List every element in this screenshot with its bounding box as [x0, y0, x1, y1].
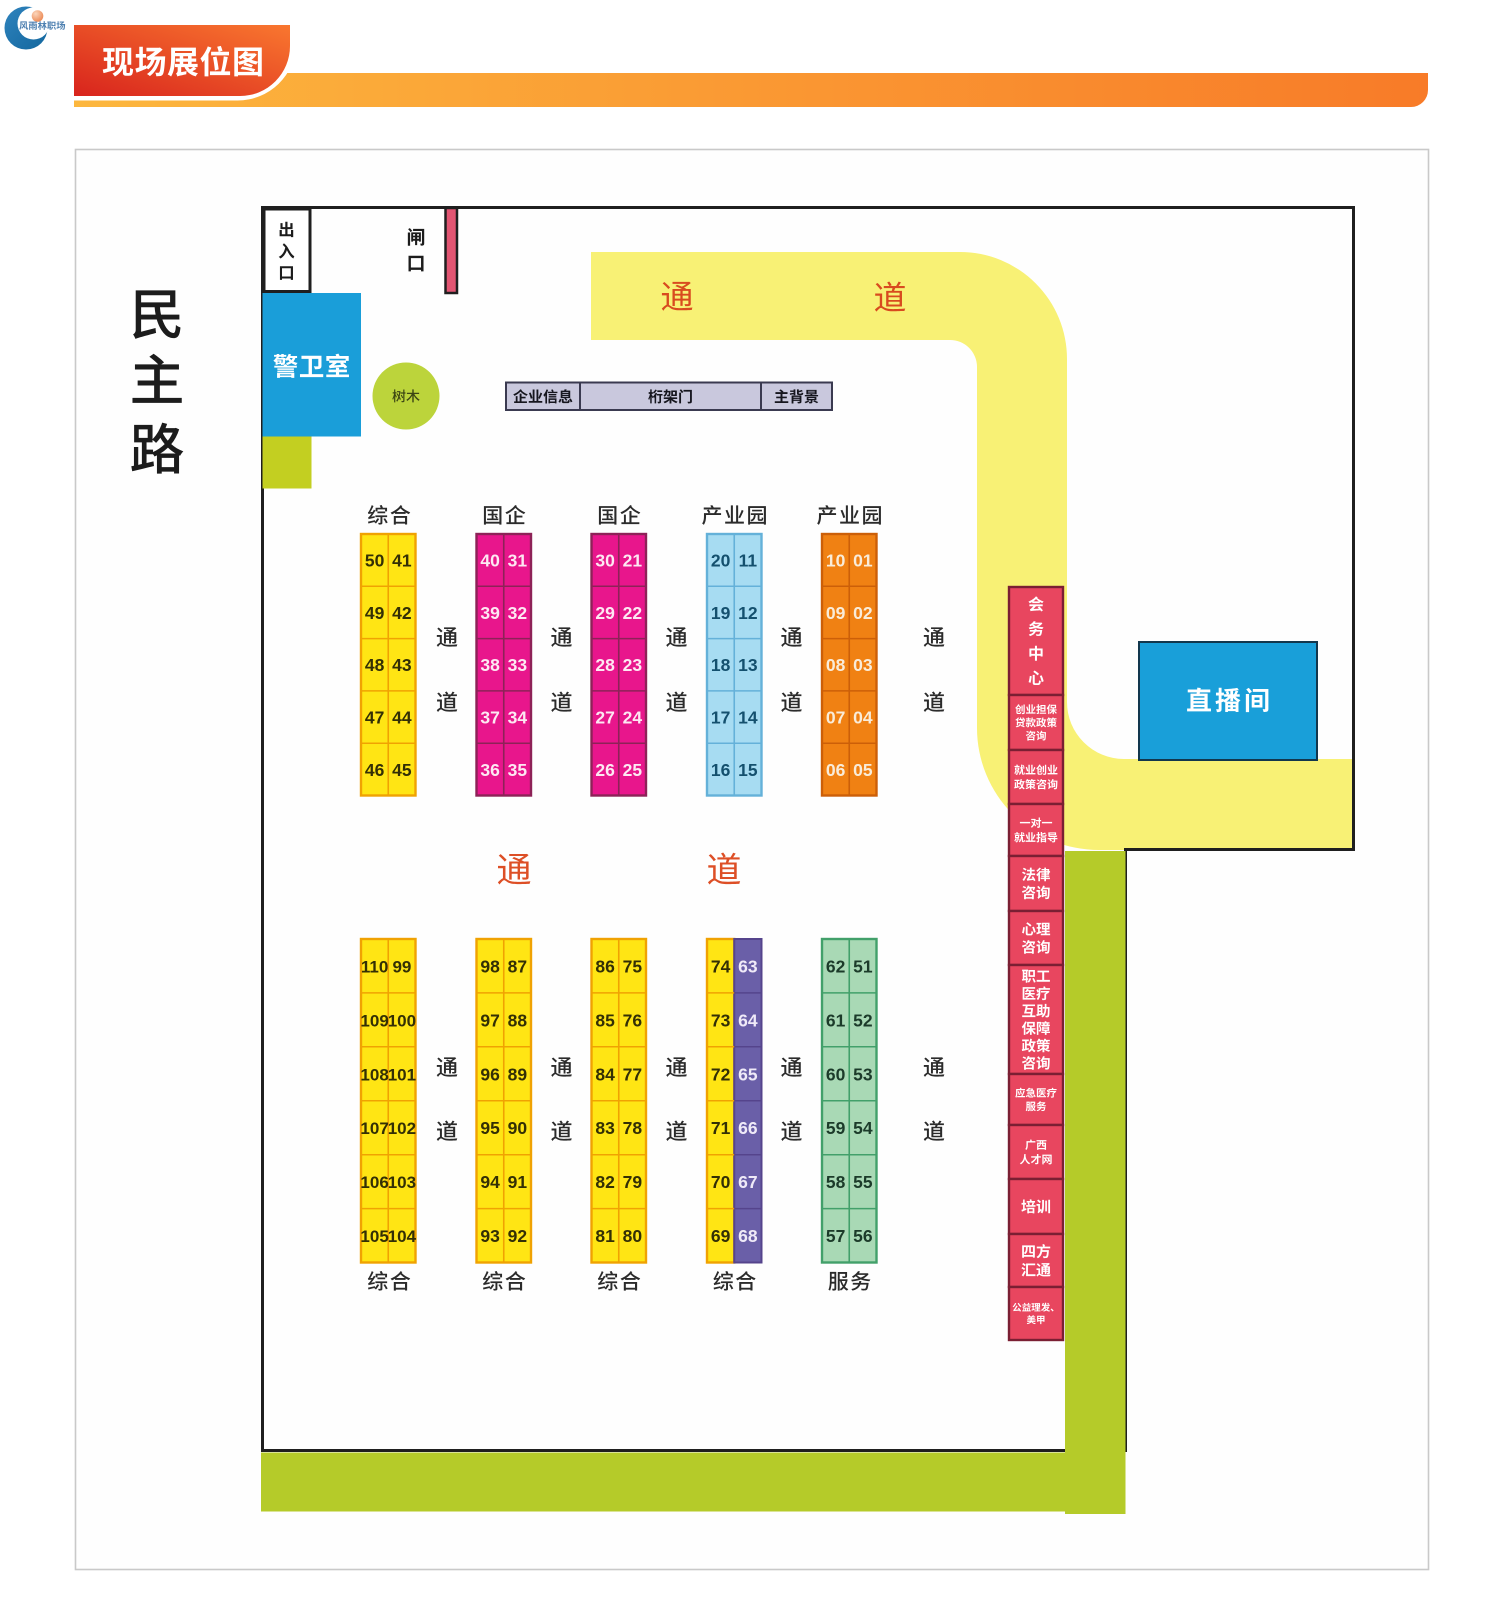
svg-text:76: 76 [623, 1010, 643, 1030]
svg-text:26: 26 [595, 760, 615, 780]
svg-text:36: 36 [480, 760, 500, 780]
svg-text:85: 85 [595, 1010, 615, 1030]
svg-text:50: 50 [365, 551, 385, 571]
svg-text:89: 89 [508, 1064, 528, 1084]
svg-text:59: 59 [826, 1118, 846, 1138]
svg-text:39: 39 [480, 603, 500, 623]
svg-text:41: 41 [392, 551, 412, 571]
svg-text:33: 33 [508, 655, 528, 675]
svg-text:83: 83 [595, 1118, 615, 1138]
svg-text:16: 16 [711, 760, 731, 780]
svg-text:81: 81 [595, 1226, 615, 1246]
svg-text:34: 34 [508, 708, 528, 728]
svg-text:37: 37 [480, 708, 499, 728]
svg-text:63: 63 [738, 957, 758, 977]
svg-text:07: 07 [826, 708, 845, 728]
svg-text:106: 106 [360, 1173, 388, 1192]
svg-text:45: 45 [392, 760, 412, 780]
svg-text:01: 01 [853, 551, 873, 571]
svg-text:12: 12 [738, 603, 758, 623]
svg-text:08: 08 [826, 655, 846, 675]
svg-text:72: 72 [711, 1064, 731, 1084]
svg-text:94: 94 [480, 1172, 500, 1192]
svg-text:64: 64 [738, 1010, 758, 1030]
svg-text:100: 100 [388, 1011, 416, 1030]
svg-text:29: 29 [595, 603, 615, 623]
svg-text:31: 31 [508, 551, 528, 571]
svg-text:98: 98 [480, 957, 500, 977]
svg-text:60: 60 [826, 1064, 846, 1084]
svg-text:101: 101 [388, 1065, 416, 1084]
svg-text:40: 40 [480, 551, 500, 571]
svg-text:103: 103 [388, 1173, 416, 1192]
svg-text:80: 80 [623, 1226, 643, 1246]
svg-text:95: 95 [480, 1118, 500, 1138]
svg-text:97: 97 [480, 1010, 499, 1030]
svg-text:104: 104 [388, 1227, 417, 1246]
svg-text:107: 107 [360, 1119, 388, 1138]
svg-text:30: 30 [595, 551, 615, 571]
svg-text:10: 10 [826, 551, 846, 571]
svg-text:32: 32 [508, 603, 528, 623]
svg-text:20: 20 [711, 551, 731, 571]
svg-text:69: 69 [711, 1226, 731, 1246]
svg-text:73: 73 [711, 1010, 731, 1030]
svg-text:78: 78 [623, 1118, 643, 1138]
svg-text:22: 22 [623, 603, 643, 623]
svg-text:68: 68 [738, 1226, 758, 1246]
svg-text:23: 23 [623, 655, 643, 675]
svg-text:06: 06 [826, 760, 846, 780]
svg-text:03: 03 [853, 655, 873, 675]
svg-text:84: 84 [595, 1064, 615, 1084]
svg-text:48: 48 [365, 655, 385, 675]
svg-text:47: 47 [365, 708, 384, 728]
svg-text:90: 90 [508, 1118, 528, 1138]
svg-text:58: 58 [826, 1172, 846, 1192]
svg-text:75: 75 [623, 957, 643, 977]
svg-text:38: 38 [480, 655, 500, 675]
svg-text:35: 35 [508, 760, 528, 780]
svg-text:93: 93 [480, 1226, 500, 1246]
svg-text:19: 19 [711, 603, 731, 623]
svg-text:49: 49 [365, 603, 385, 623]
svg-text:21: 21 [623, 551, 643, 571]
svg-text:15: 15 [738, 760, 758, 780]
svg-text:71: 71 [711, 1118, 731, 1138]
svg-text:74: 74 [711, 957, 731, 977]
svg-text:99: 99 [392, 958, 411, 977]
svg-text:88: 88 [508, 1010, 528, 1030]
svg-text:102: 102 [388, 1119, 416, 1138]
svg-text:79: 79 [623, 1172, 643, 1192]
svg-text:109: 109 [360, 1011, 388, 1030]
svg-text:18: 18 [711, 655, 731, 675]
svg-text:77: 77 [623, 1064, 642, 1084]
svg-text:70: 70 [711, 1172, 731, 1192]
svg-text:52: 52 [853, 1010, 873, 1030]
svg-text:67: 67 [738, 1172, 757, 1192]
svg-text:25: 25 [623, 760, 643, 780]
svg-text:54: 54 [853, 1118, 873, 1138]
svg-text:92: 92 [508, 1226, 528, 1246]
svg-text:43: 43 [392, 655, 412, 675]
svg-text:87: 87 [508, 957, 527, 977]
svg-text:62: 62 [826, 957, 846, 977]
svg-text:28: 28 [595, 655, 615, 675]
svg-text:108: 108 [360, 1065, 388, 1084]
svg-text:96: 96 [480, 1064, 500, 1084]
svg-text:42: 42 [392, 603, 412, 623]
svg-text:55: 55 [853, 1172, 873, 1192]
svg-text:02: 02 [853, 603, 873, 623]
svg-text:105: 105 [360, 1227, 388, 1246]
svg-text:53: 53 [853, 1064, 873, 1084]
svg-text:27: 27 [595, 708, 614, 728]
svg-text:82: 82 [595, 1172, 615, 1192]
svg-text:05: 05 [853, 760, 873, 780]
svg-text:17: 17 [711, 708, 730, 728]
svg-text:51: 51 [853, 957, 873, 977]
svg-text:04: 04 [853, 708, 873, 728]
svg-text:61: 61 [826, 1010, 846, 1030]
svg-text:44: 44 [392, 708, 412, 728]
svg-text:86: 86 [595, 957, 615, 977]
svg-text:56: 56 [853, 1226, 873, 1246]
svg-text:65: 65 [738, 1064, 758, 1084]
svg-text:66: 66 [738, 1118, 758, 1138]
svg-text:11: 11 [739, 551, 758, 571]
svg-text:91: 91 [508, 1172, 528, 1192]
svg-text:13: 13 [738, 655, 758, 675]
svg-text:57: 57 [826, 1226, 845, 1246]
svg-text:09: 09 [826, 603, 846, 623]
svg-text:24: 24 [623, 708, 643, 728]
svg-text:110: 110 [361, 958, 388, 977]
svg-text:14: 14 [738, 708, 758, 728]
svg-text:46: 46 [365, 760, 385, 780]
